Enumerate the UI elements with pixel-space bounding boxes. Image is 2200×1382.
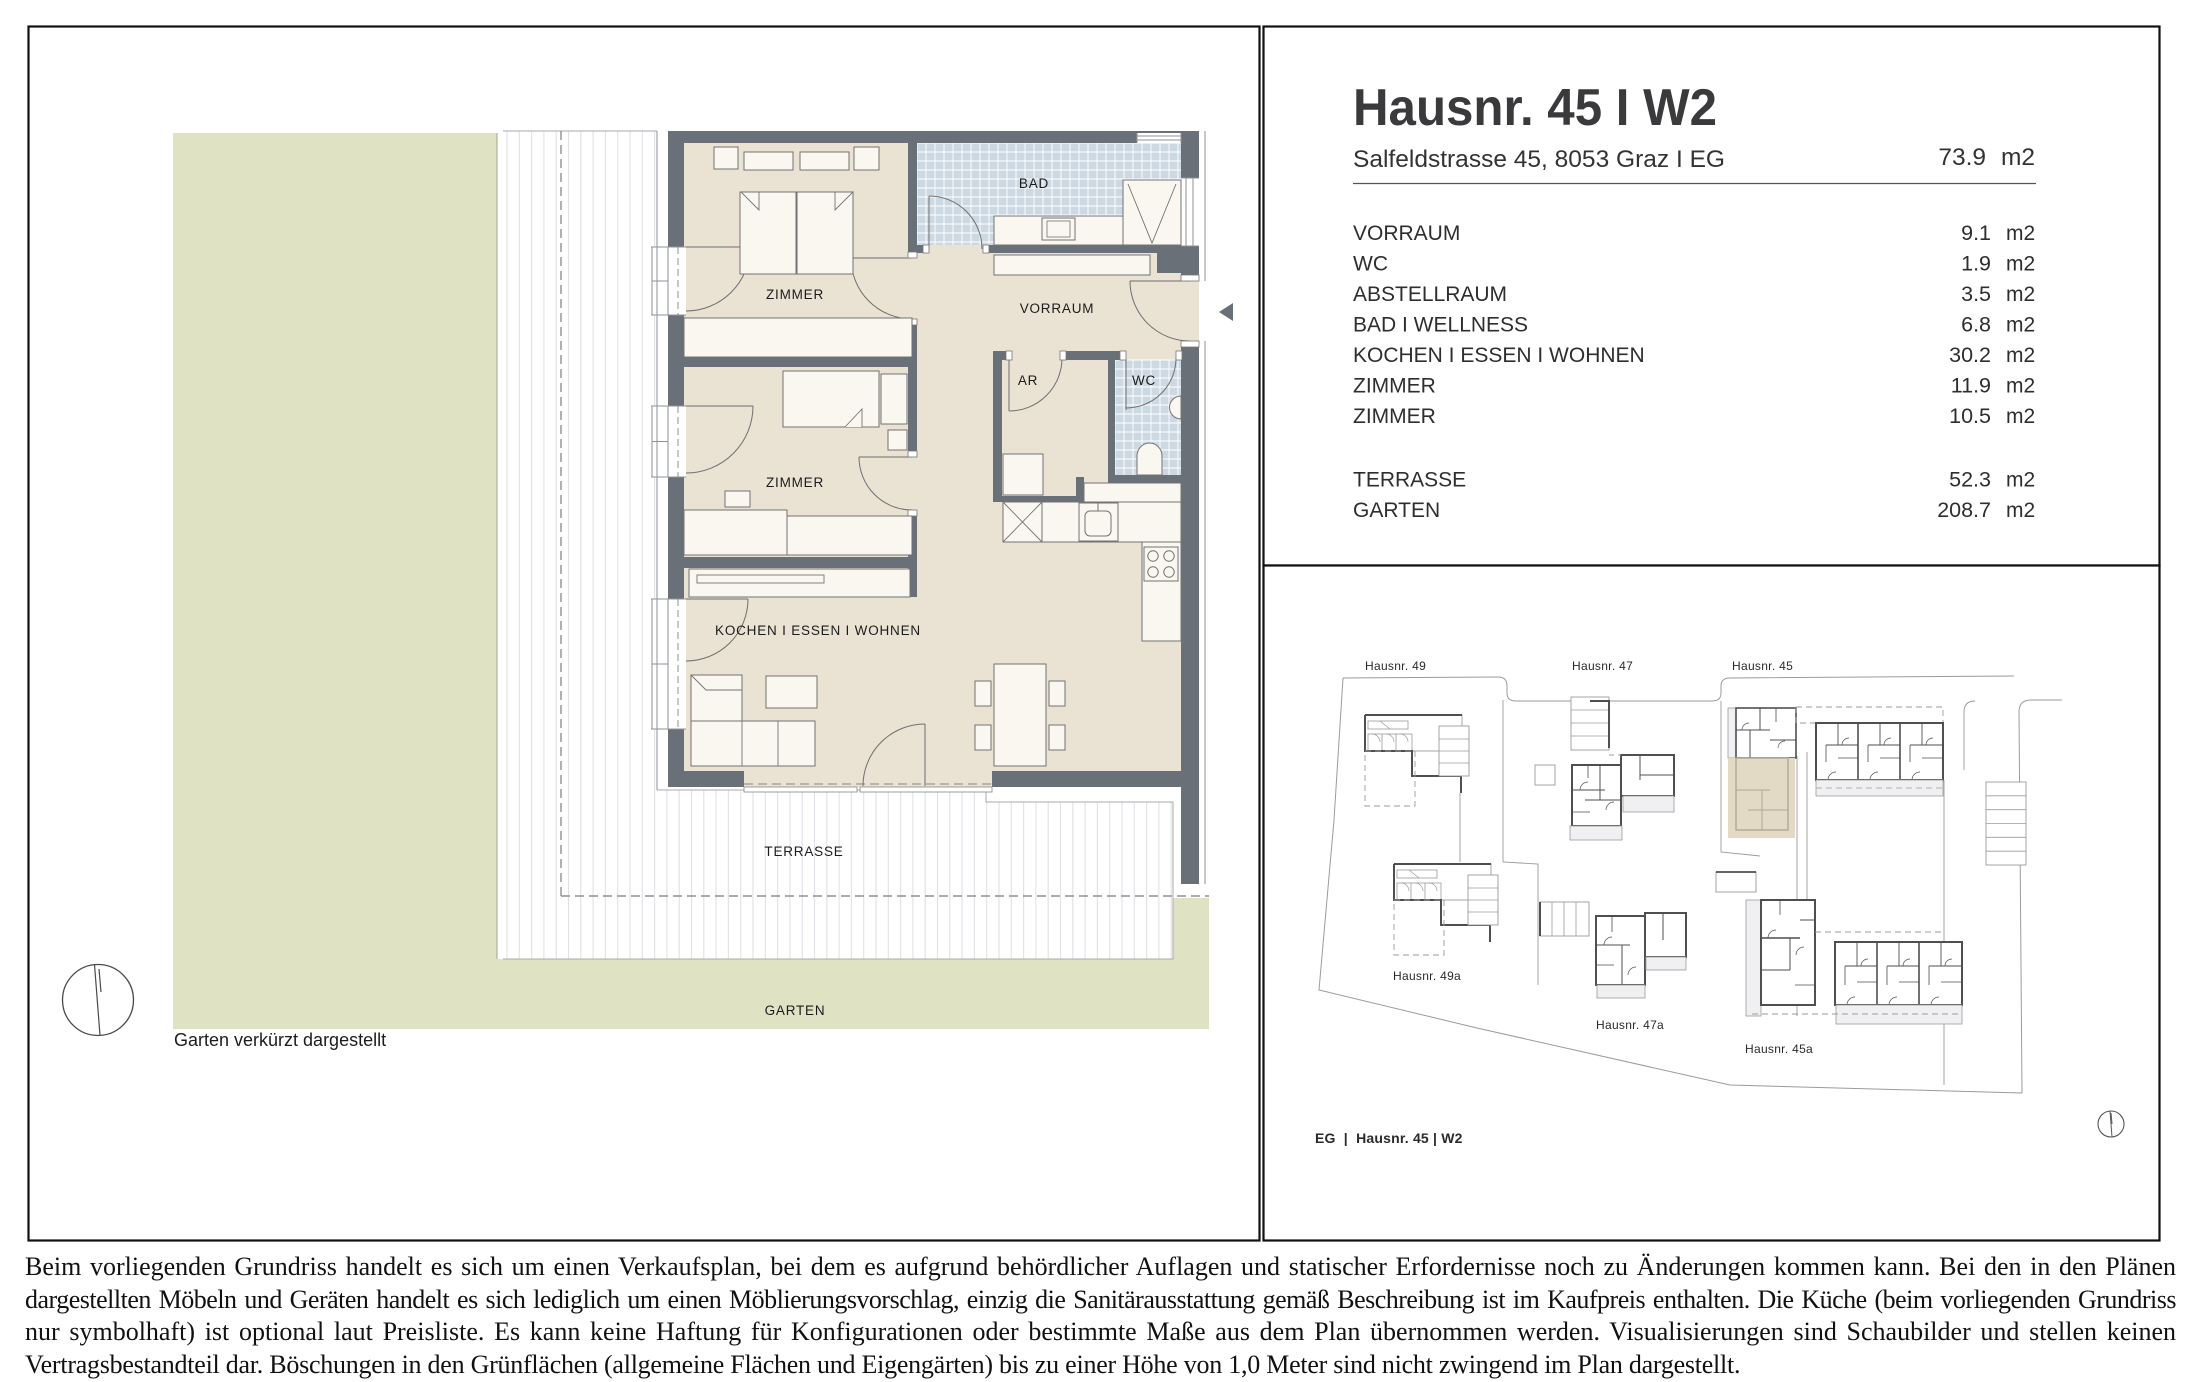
svg-text:ZIMMER: ZIMMER bbox=[1353, 375, 1436, 398]
svg-text:m2: m2 bbox=[2006, 344, 2035, 367]
svg-text:m2: m2 bbox=[2006, 499, 2035, 522]
svg-text:AR: AR bbox=[1018, 373, 1038, 388]
svg-text:VORRAUM: VORRAUM bbox=[1020, 301, 1095, 316]
svg-text:WC: WC bbox=[1132, 373, 1156, 388]
svg-text:9.1: 9.1 bbox=[1961, 221, 1991, 245]
svg-text:ABSTELLRAUM: ABSTELLRAUM bbox=[1353, 283, 1507, 306]
svg-text:m2: m2 bbox=[2001, 144, 2035, 171]
svg-text:ZIMMER: ZIMMER bbox=[766, 475, 824, 490]
svg-text:Hausnr. 45 I W2: Hausnr. 45 I W2 bbox=[1353, 79, 1717, 137]
svg-text:11.9: 11.9 bbox=[1951, 374, 1991, 398]
svg-text:30.2: 30.2 bbox=[1949, 343, 1991, 367]
svg-text:GARTEN: GARTEN bbox=[1353, 499, 1440, 522]
svg-text:KOCHEN I ESSEN I WOHNEN: KOCHEN I ESSEN I WOHNEN bbox=[715, 623, 921, 638]
svg-text:Hausnr. 49a: Hausnr. 49a bbox=[1393, 969, 1461, 983]
svg-text:GARTEN: GARTEN bbox=[765, 1003, 826, 1018]
svg-text:3.5: 3.5 bbox=[1961, 282, 1991, 306]
svg-text:Garten verkürzt dargestellt: Garten verkürzt dargestellt bbox=[174, 1030, 386, 1050]
svg-text:Hausnr. 47a: Hausnr. 47a bbox=[1596, 1018, 1664, 1032]
svg-text:m2: m2 bbox=[2006, 314, 2035, 337]
svg-text:WC: WC bbox=[1353, 253, 1388, 276]
svg-text:EG | Hausnr. 45 | W2: EG | Hausnr. 45 | W2 bbox=[1315, 1130, 1463, 1146]
svg-text:Salfeldstrasse 45, 8053 Graz I: Salfeldstrasse 45, 8053 Graz I EG bbox=[1353, 146, 1725, 173]
svg-text:m2: m2 bbox=[2006, 469, 2035, 492]
svg-text:10.5: 10.5 bbox=[1949, 404, 1991, 428]
svg-text:Hausnr. 45a: Hausnr. 45a bbox=[1745, 1042, 1813, 1056]
svg-text:ZIMMER: ZIMMER bbox=[1353, 405, 1436, 428]
svg-text:1.9: 1.9 bbox=[1961, 252, 1991, 276]
svg-text:m2: m2 bbox=[2006, 375, 2035, 398]
svg-text:6.8: 6.8 bbox=[1961, 313, 1991, 337]
svg-text:m2: m2 bbox=[2006, 253, 2035, 276]
svg-text:BAD I WELLNESS: BAD I WELLNESS bbox=[1353, 314, 1528, 337]
svg-text:ZIMMER: ZIMMER bbox=[766, 287, 824, 302]
svg-text:Hausnr. 49: Hausnr. 49 bbox=[1365, 659, 1426, 673]
svg-text:Hausnr. 47: Hausnr. 47 bbox=[1572, 659, 1633, 673]
svg-text:208.7: 208.7 bbox=[1937, 498, 1991, 522]
svg-text:BAD: BAD bbox=[1019, 176, 1049, 191]
svg-text:m2: m2 bbox=[2006, 405, 2035, 428]
svg-text:73.9: 73.9 bbox=[1938, 144, 1986, 171]
svg-text:Hausnr. 45: Hausnr. 45 bbox=[1732, 659, 1793, 673]
svg-text:KOCHEN I ESSEN I WOHNEN: KOCHEN I ESSEN I WOHNEN bbox=[1353, 344, 1645, 367]
svg-text:TERRASSE: TERRASSE bbox=[1353, 469, 1466, 492]
svg-text:52.3: 52.3 bbox=[1949, 468, 1991, 492]
svg-text:VORRAUM: VORRAUM bbox=[1353, 222, 1460, 245]
svg-text:m2: m2 bbox=[2006, 222, 2035, 245]
svg-text:TERRASSE: TERRASSE bbox=[764, 844, 843, 859]
svg-text:m2: m2 bbox=[2006, 283, 2035, 306]
